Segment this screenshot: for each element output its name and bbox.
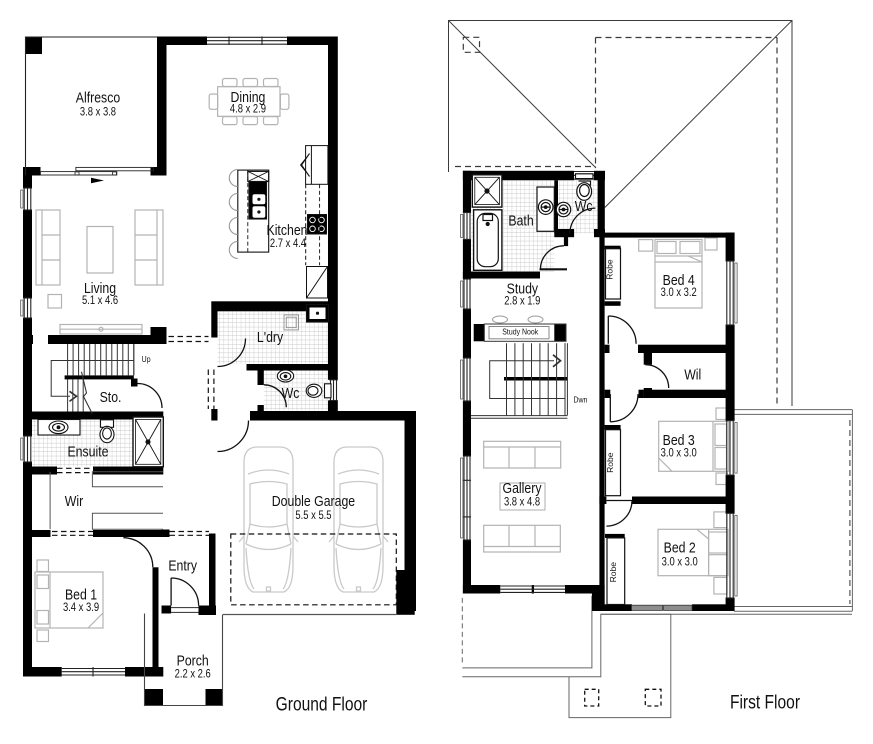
svg-text:Robe: Robe xyxy=(608,562,618,583)
svg-text:Dwn: Dwn xyxy=(574,395,588,405)
svg-text:3.8 x 3.8: 3.8 x 3.8 xyxy=(80,106,116,119)
svg-text:Ground Floor: Ground Floor xyxy=(276,693,368,715)
svg-text:3.4 x 3.9: 3.4 x 3.9 xyxy=(63,601,99,614)
svg-text:Robe: Robe xyxy=(605,452,615,473)
svg-text:3.0 x 3.2: 3.0 x 3.2 xyxy=(661,286,697,299)
svg-text:2.7 x 4.4: 2.7 x 4.4 xyxy=(270,237,306,250)
svg-text:Wir: Wir xyxy=(65,493,84,509)
svg-text:4.8 x 2.9: 4.8 x 2.9 xyxy=(230,103,266,116)
svg-text:Up: Up xyxy=(142,354,151,364)
svg-text:Bed 2: Bed 2 xyxy=(664,539,696,555)
svg-text:Study Nook: Study Nook xyxy=(502,327,538,337)
svg-text:Double Garage: Double Garage xyxy=(272,493,356,509)
svg-text:L'dry: L'dry xyxy=(257,329,283,345)
svg-text:Wc: Wc xyxy=(575,198,593,214)
svg-text:Bath: Bath xyxy=(508,212,533,228)
svg-text:2.8 x 1.9: 2.8 x 1.9 xyxy=(504,295,540,308)
svg-text:5.1 x 4.6: 5.1 x 4.6 xyxy=(82,294,118,307)
svg-text:5.5 x 5.5: 5.5 x 5.5 xyxy=(295,509,331,522)
svg-text:Alfresco: Alfresco xyxy=(76,89,121,105)
svg-text:Entry: Entry xyxy=(168,557,197,573)
svg-text:3.8 x 4.8: 3.8 x 4.8 xyxy=(504,496,540,509)
svg-text:2.2 x 2.6: 2.2 x 2.6 xyxy=(175,668,211,681)
svg-text:Sto.: Sto. xyxy=(100,389,122,405)
svg-text:Wc: Wc xyxy=(282,385,300,401)
svg-text:Robe: Robe xyxy=(605,259,615,280)
svg-text:3.0 x 3.0: 3.0 x 3.0 xyxy=(661,447,697,460)
svg-text:Ensuite: Ensuite xyxy=(67,443,108,459)
svg-text:Kitchen: Kitchen xyxy=(267,222,308,238)
svg-text:Gallery: Gallery xyxy=(503,480,542,496)
svg-text:3.0 x 3.0: 3.0 x 3.0 xyxy=(662,556,698,569)
svg-text:Porch: Porch xyxy=(177,652,209,668)
svg-text:First Floor: First Floor xyxy=(730,691,800,713)
svg-text:Wil: Wil xyxy=(684,366,701,382)
